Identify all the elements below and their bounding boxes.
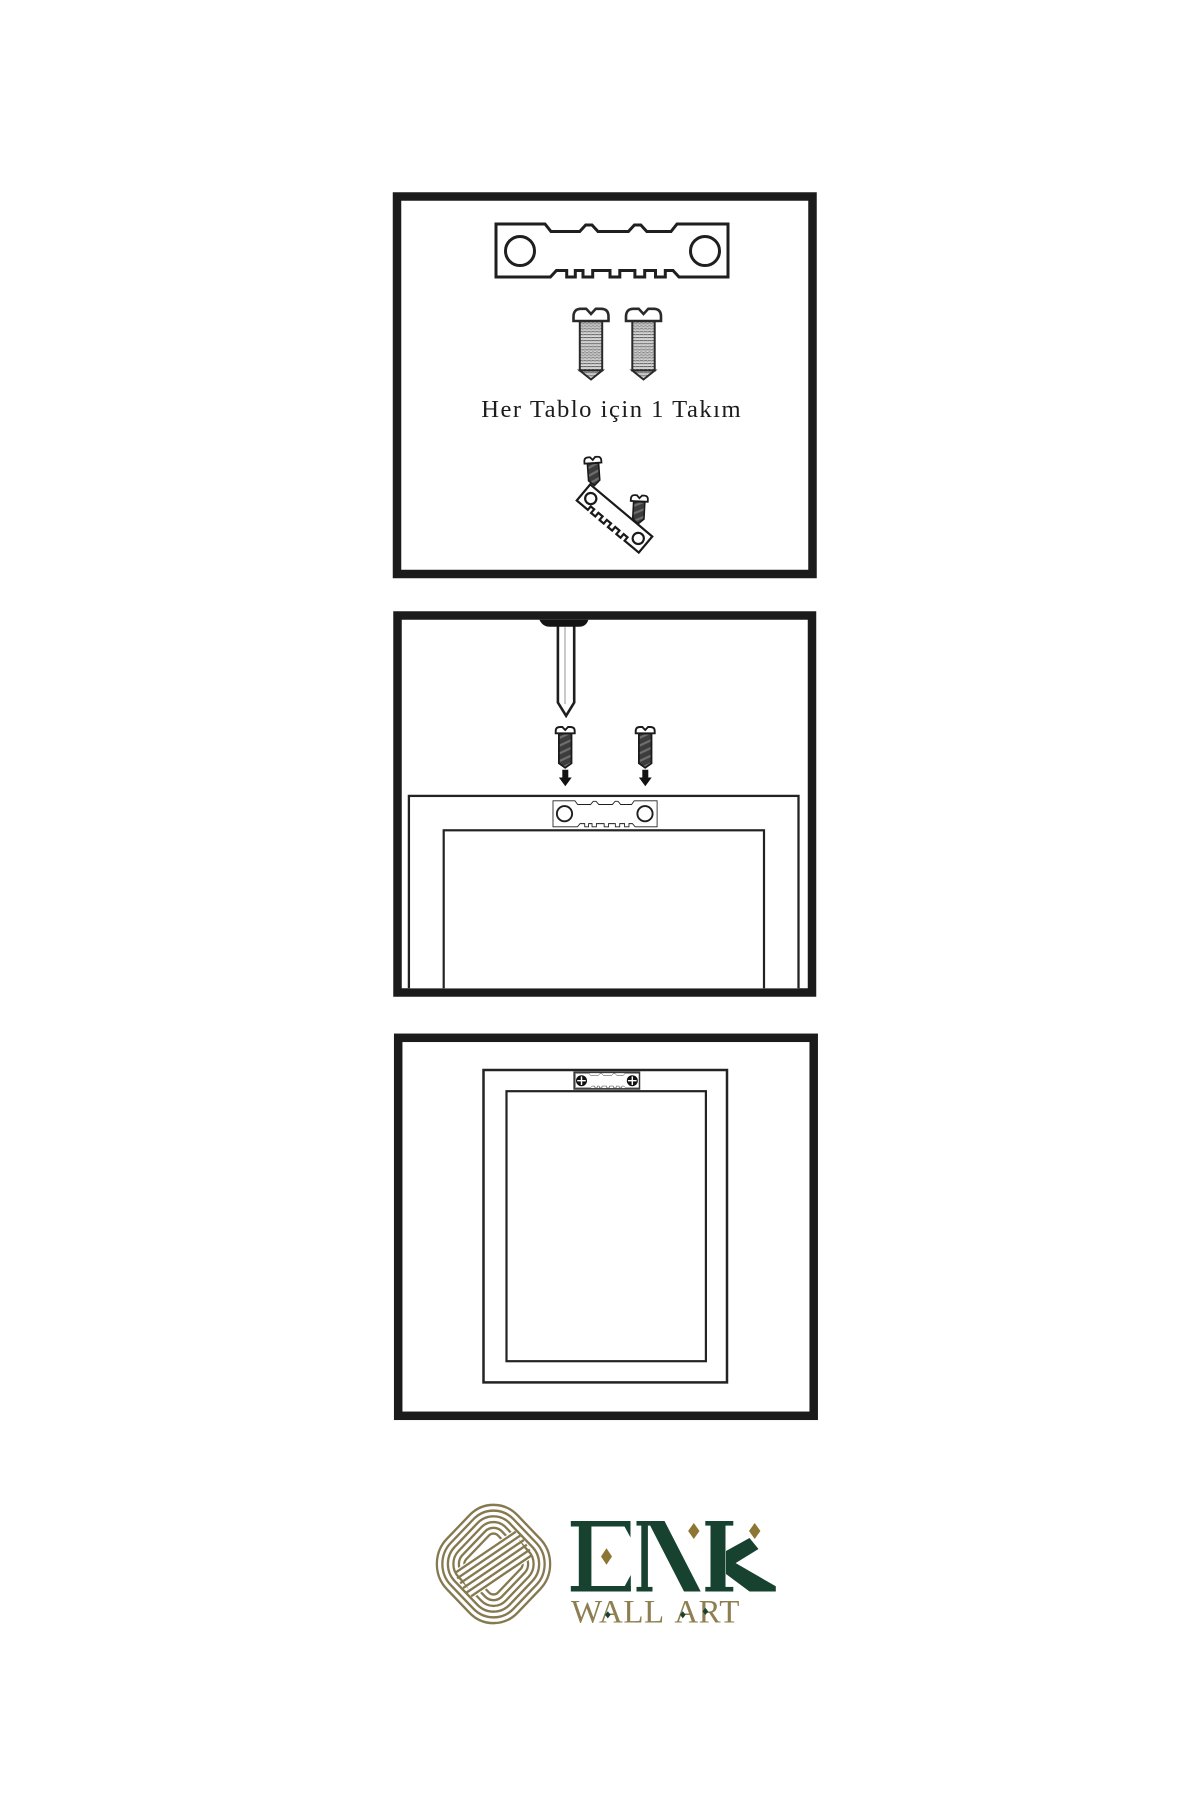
- svg-text:WALL ART: WALL ART: [571, 1594, 740, 1630]
- svg-text:Her Tablo için 1 Takım: Her Tablo için 1 Takım: [481, 396, 742, 423]
